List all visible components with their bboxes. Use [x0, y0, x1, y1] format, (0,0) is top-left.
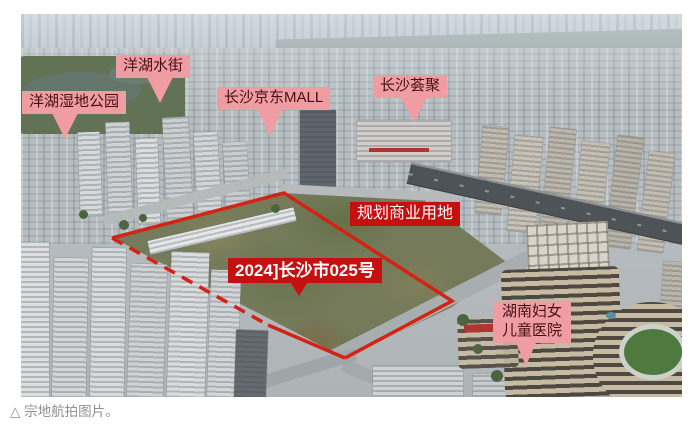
label-wetland-park: 洋湖湿地公园 — [22, 91, 126, 114]
rooftop-building — [373, 366, 463, 397]
building-tower — [52, 258, 88, 397]
tree — [473, 344, 483, 354]
aerial-photo: 洋湖湿地公园 洋湖水街 长沙京东MALL 长沙荟聚 规划商业用地 2024]长沙… — [21, 14, 682, 397]
label-pointer — [147, 77, 173, 103]
tree — [491, 370, 503, 382]
label-pointer — [401, 98, 427, 122]
tree — [79, 210, 88, 219]
huiju-mall-building — [357, 120, 451, 162]
label-pointer — [52, 113, 78, 139]
label-pointer — [257, 107, 283, 137]
roof-pool — [606, 312, 616, 319]
figure-page: 洋湖湿地公园 洋湖水街 长沙京东MALL 长沙荟聚 规划商业用地 2024]长沙… — [0, 0, 694, 429]
tree — [271, 204, 280, 213]
building-tower — [166, 251, 209, 397]
hospital-label-line1: 湖南妇女 — [500, 303, 564, 322]
label-pointer — [289, 280, 309, 296]
building-tower — [21, 242, 49, 397]
label-hospital: 湖南妇女 儿童医院 — [493, 301, 571, 343]
mall-sign-strip — [369, 148, 429, 152]
building-tower — [78, 132, 103, 217]
tree — [119, 220, 129, 230]
building-tower — [127, 263, 168, 397]
tree — [457, 314, 469, 326]
tree — [139, 214, 147, 222]
label-pointer — [514, 338, 538, 366]
figure-caption: △ 宗地航拍图片。 — [10, 400, 119, 420]
building-tower — [234, 329, 268, 397]
label-water-street: 洋湖水街 — [116, 55, 190, 78]
building-tower — [105, 122, 132, 219]
building-tower — [90, 248, 127, 397]
hospital-courtyard-roof — [619, 324, 682, 380]
label-planned-commercial: 规划商业用地 — [350, 202, 460, 226]
label-huiju: 长沙荟聚 — [373, 75, 447, 98]
